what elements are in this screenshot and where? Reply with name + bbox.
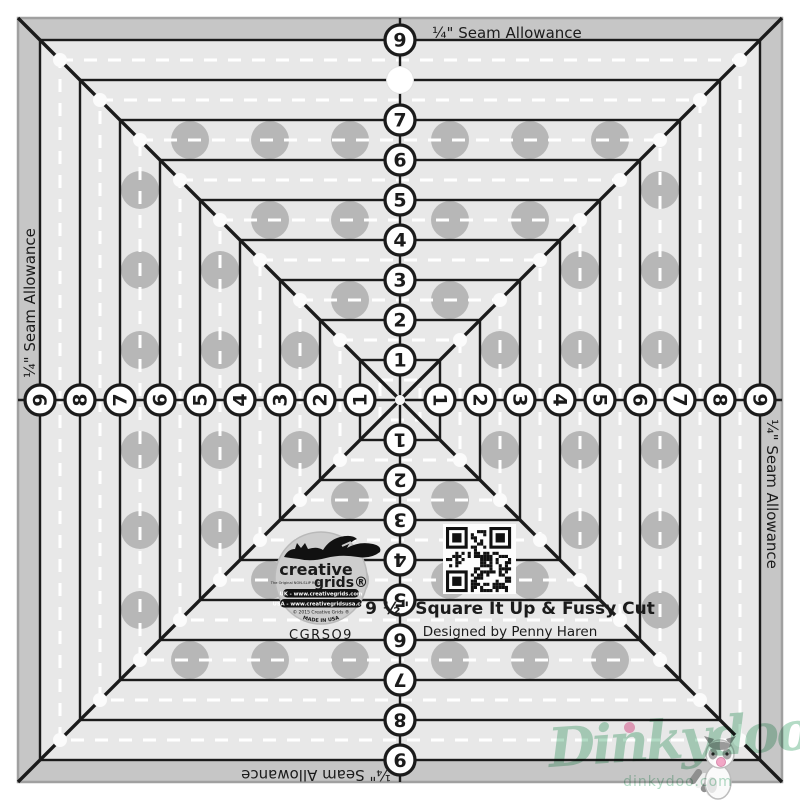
qr-module	[458, 555, 461, 558]
qr-module	[496, 580, 499, 583]
qr-module	[483, 558, 486, 561]
qr-module	[496, 558, 499, 561]
axis-number-left-6: 6	[145, 385, 175, 415]
axis-number-top-5: 5	[385, 185, 415, 215]
brand-tagline: The Original NON-SLIP Ruler	[270, 581, 322, 585]
number-label: 6	[393, 629, 406, 651]
number-label: 4	[230, 393, 252, 406]
qr-module	[483, 589, 486, 592]
qr-module	[462, 552, 465, 555]
qr-module	[502, 583, 505, 586]
number-label: 1	[350, 393, 372, 406]
number-label: 2	[469, 393, 491, 406]
sku-label: CGRSQ9	[289, 628, 353, 643]
qr-module	[505, 555, 508, 558]
diagonal-dot	[533, 533, 547, 547]
axis-number-right-4: 4	[545, 385, 575, 415]
qr-module	[483, 552, 486, 555]
number-label: 6	[393, 150, 406, 172]
diagonal-dot	[53, 53, 67, 67]
axis-number-top-3: 3	[385, 265, 415, 295]
axis-number-left-2: 2	[305, 385, 335, 415]
qr-module	[489, 558, 492, 561]
diagonal-dot	[573, 213, 587, 227]
brand-name-grids: grids®	[314, 575, 368, 591]
qr-module	[480, 570, 483, 573]
number-label: 8	[709, 393, 731, 406]
number-label: 3	[393, 270, 406, 292]
qr-module	[477, 574, 480, 577]
qr-module	[477, 555, 480, 558]
diagonal-dot	[173, 173, 187, 187]
number-label: 9	[393, 30, 406, 52]
qr-code	[443, 524, 516, 594]
axis-number-bottom-6: 6	[385, 625, 415, 655]
diagonal-dot	[653, 653, 667, 667]
number-label: 4	[549, 393, 571, 406]
qr-module	[471, 586, 474, 589]
diagonal-dot	[293, 293, 307, 307]
qr-module	[483, 533, 486, 536]
qr-module	[508, 567, 511, 570]
qr-module	[474, 546, 477, 549]
qr-module	[486, 589, 489, 592]
qr-module	[455, 564, 458, 567]
qr-module	[480, 530, 483, 533]
qr-module	[471, 583, 474, 586]
diagonal-dot	[573, 573, 587, 587]
qr-module	[493, 552, 496, 555]
diagonal-dot	[93, 693, 107, 707]
qr-module	[474, 580, 477, 583]
diagonal-dot	[693, 93, 707, 107]
qr-module	[471, 589, 474, 592]
qr-module	[474, 570, 477, 573]
qr-module	[486, 552, 489, 555]
qr-module	[499, 555, 502, 558]
qr-module	[486, 574, 489, 577]
qr-finder	[452, 533, 461, 542]
qr-module	[505, 570, 508, 573]
axis-number-right-1: 1	[425, 385, 455, 415]
axis-number-right-7: 7	[665, 385, 695, 415]
qr-module	[474, 567, 477, 570]
axis-number-bottom-3: 3	[385, 505, 415, 535]
qr-module	[477, 552, 480, 555]
qr-module	[483, 561, 486, 564]
qr-module	[471, 546, 474, 549]
qr-module	[489, 570, 492, 573]
axis-number-left-9: 9	[25, 385, 55, 415]
qr-module	[477, 583, 480, 586]
quilting-ruler: 12345679123456789123456789123456789 ¼" S…	[0, 0, 800, 800]
axis-number-top-1: 1	[385, 345, 415, 375]
product-title: 9 ½" Square It Up & Fussy Cut	[365, 599, 655, 619]
diagonal-dot	[333, 453, 347, 467]
qr-module	[455, 558, 458, 561]
qr-module	[474, 577, 477, 580]
number-label: 8	[70, 393, 92, 406]
diagonal-dot	[53, 733, 67, 747]
number-label: 4	[393, 549, 406, 571]
qr-module	[474, 552, 477, 555]
usa-url: USA - www.creativegridsusa.com	[273, 602, 370, 608]
axis-number-top-9: 9	[385, 25, 415, 55]
qr-module	[502, 586, 505, 589]
qr-module	[446, 558, 449, 561]
qr-module	[474, 539, 477, 542]
seam-label-bottom: ¼" Seam Allowance	[241, 766, 391, 784]
qr-module	[502, 567, 505, 570]
qr-module	[505, 580, 508, 583]
diagonal-dot	[93, 93, 107, 107]
number-label: 5	[190, 393, 212, 406]
qr-module	[486, 564, 489, 567]
qr-module	[489, 555, 492, 558]
number-label: 8	[393, 709, 406, 731]
diagonal-dot	[733, 53, 747, 67]
qr-module	[505, 586, 508, 589]
axis-number-bottom-7: 7	[385, 665, 415, 695]
axis-number-bottom-1: 1	[385, 425, 415, 455]
qr-module	[502, 555, 505, 558]
qr-module	[499, 570, 502, 573]
axis-number-bottom-8: 8	[385, 705, 415, 735]
qr-module	[458, 561, 461, 564]
qr-module	[493, 583, 496, 586]
qr-module	[483, 583, 486, 586]
qr-module	[496, 589, 499, 592]
axis-number-right-6: 6	[625, 385, 655, 415]
qr-module	[452, 555, 455, 558]
qr-module	[480, 561, 483, 564]
axis-number-right-5: 5	[585, 385, 615, 415]
qr-module	[505, 589, 508, 592]
qr-module	[489, 564, 492, 567]
qr-module	[499, 586, 502, 589]
number-label: 3	[509, 393, 531, 406]
qr-module	[474, 586, 477, 589]
diagonal-dot	[213, 213, 227, 227]
axis-number-left-7: 7	[105, 385, 135, 415]
qr-module	[483, 564, 486, 567]
designer-credit: Designed by Penny Haren	[423, 624, 598, 640]
qr-module	[477, 567, 480, 570]
hanging-hole	[387, 67, 414, 94]
seam-label-top: ¼" Seam Allowance	[432, 24, 582, 42]
qr-module	[496, 586, 499, 589]
qr-module	[499, 583, 502, 586]
diagonal-dot	[253, 253, 267, 267]
copyright-text: © 2015 Creative Grids ®	[293, 609, 350, 616]
axis-number-bottom-2: 2	[385, 465, 415, 495]
number-label: 1	[393, 429, 406, 451]
diagonal-dot	[173, 613, 187, 627]
number-label: 7	[669, 393, 691, 406]
qr-module	[471, 574, 474, 577]
qr-module	[483, 570, 486, 573]
qr-module	[505, 567, 508, 570]
qr-module	[468, 552, 471, 555]
diagonal-dot	[253, 533, 267, 547]
number-label: 2	[310, 393, 332, 406]
number-label: 1	[429, 393, 451, 406]
number-label: 5	[589, 393, 611, 406]
qr-module	[477, 530, 480, 533]
qr-module	[480, 577, 483, 580]
qr-module	[508, 558, 511, 561]
qr-module	[449, 564, 452, 567]
qr-module	[489, 589, 492, 592]
diagonal-dot	[733, 733, 747, 747]
qr-module	[508, 580, 511, 583]
number-label: 3	[270, 393, 292, 406]
qr-finder	[496, 533, 505, 542]
axis-number-left-8: 8	[65, 385, 95, 415]
number-label: 6	[150, 393, 172, 406]
qr-module	[474, 583, 477, 586]
diagonal-dot	[493, 293, 507, 307]
qr-module	[486, 583, 489, 586]
axis-number-right-2: 2	[465, 385, 495, 415]
number-label: 6	[629, 393, 651, 406]
axis-number-left-3: 3	[265, 385, 295, 415]
qr-module	[502, 574, 505, 577]
qr-module	[480, 555, 483, 558]
qr-module	[499, 567, 502, 570]
qr-module	[468, 555, 471, 558]
qr-module	[480, 586, 483, 589]
qr-module	[471, 533, 474, 536]
axis-number-top-2: 2	[385, 305, 415, 335]
axis-number-top-7: 7	[385, 105, 415, 135]
qr-module	[505, 564, 508, 567]
axis-number-right-8: 8	[705, 385, 735, 415]
axis-number-left-1: 1	[345, 385, 375, 415]
number-label: 3	[393, 509, 406, 531]
number-label: 7	[110, 393, 132, 406]
axis-number-top-6: 6	[385, 145, 415, 175]
qr-module	[471, 580, 474, 583]
qr-module	[480, 589, 483, 592]
qr-module	[474, 549, 477, 552]
qr-module	[486, 558, 489, 561]
number-label: 7	[393, 110, 406, 132]
qr-module	[474, 555, 477, 558]
number-label: 9	[749, 393, 771, 406]
diagonal-dot	[213, 573, 227, 587]
qr-module	[499, 564, 502, 567]
qr-module	[480, 574, 483, 577]
diagonal-dot	[293, 493, 307, 507]
diagonal-dot	[533, 253, 547, 267]
qr-module	[489, 567, 492, 570]
diagonal-dot	[653, 133, 667, 147]
qr-module	[480, 543, 483, 546]
axis-number-top-4: 4	[385, 225, 415, 255]
diagonal-dot	[453, 453, 467, 467]
axis-number-bottom-4: 4	[385, 545, 415, 575]
number-label: 7	[393, 669, 406, 691]
axis-number-left-4: 4	[225, 385, 255, 415]
qr-module	[455, 552, 458, 555]
product-photo: 12345679123456789123456789123456789 ¼" S…	[0, 0, 800, 800]
diagonal-dot	[133, 133, 147, 147]
number-label: 5	[393, 190, 406, 212]
qr-module	[505, 561, 508, 564]
diagonal-dot	[693, 693, 707, 707]
qr-module	[483, 530, 486, 533]
number-label: 4	[393, 230, 406, 252]
axis-number-right-9: 9	[745, 385, 775, 415]
diagonal-dot	[453, 333, 467, 347]
qr-module	[480, 539, 483, 542]
qr-module	[489, 561, 492, 564]
qr-module	[496, 552, 499, 555]
qr-finder	[452, 577, 461, 586]
number-label: 1	[393, 350, 406, 372]
qr-module	[483, 546, 486, 549]
qr-module	[483, 555, 486, 558]
qr-module	[477, 543, 480, 546]
qr-module	[496, 583, 499, 586]
diagonal-dot	[493, 493, 507, 507]
qr-module	[480, 564, 483, 567]
qr-module	[493, 570, 496, 573]
diagonal-dot	[133, 653, 147, 667]
qr-module	[508, 577, 511, 580]
qr-module	[474, 536, 477, 539]
qr-module	[505, 577, 508, 580]
number-label: 2	[393, 310, 406, 332]
qr-module	[455, 555, 458, 558]
qr-module	[508, 561, 511, 564]
qr-module	[477, 577, 480, 580]
diagonal-dot	[333, 333, 347, 347]
qr-module	[486, 570, 489, 573]
seam-label-left: ¼" Seam Allowance	[21, 228, 39, 378]
seam-label-right: ¼" Seam Allowance	[763, 419, 781, 569]
qr-module	[486, 555, 489, 558]
qr-module	[493, 586, 496, 589]
center-dot	[395, 395, 405, 405]
qr-module	[480, 558, 483, 561]
number-label: 9	[393, 749, 406, 771]
axis-number-left-5: 5	[185, 385, 215, 415]
qr-module	[455, 561, 458, 564]
qr-module	[462, 558, 465, 561]
qr-module	[449, 558, 452, 561]
qr-module	[496, 561, 499, 564]
number-label: 2	[393, 469, 406, 491]
qr-module	[471, 536, 474, 539]
uk-url: UK - www.creativegrids.com	[280, 592, 363, 598]
axis-number-right-3: 3	[505, 385, 535, 415]
number-label: 9	[30, 393, 52, 406]
diagonal-dot	[613, 173, 627, 187]
qr-module	[499, 574, 502, 577]
